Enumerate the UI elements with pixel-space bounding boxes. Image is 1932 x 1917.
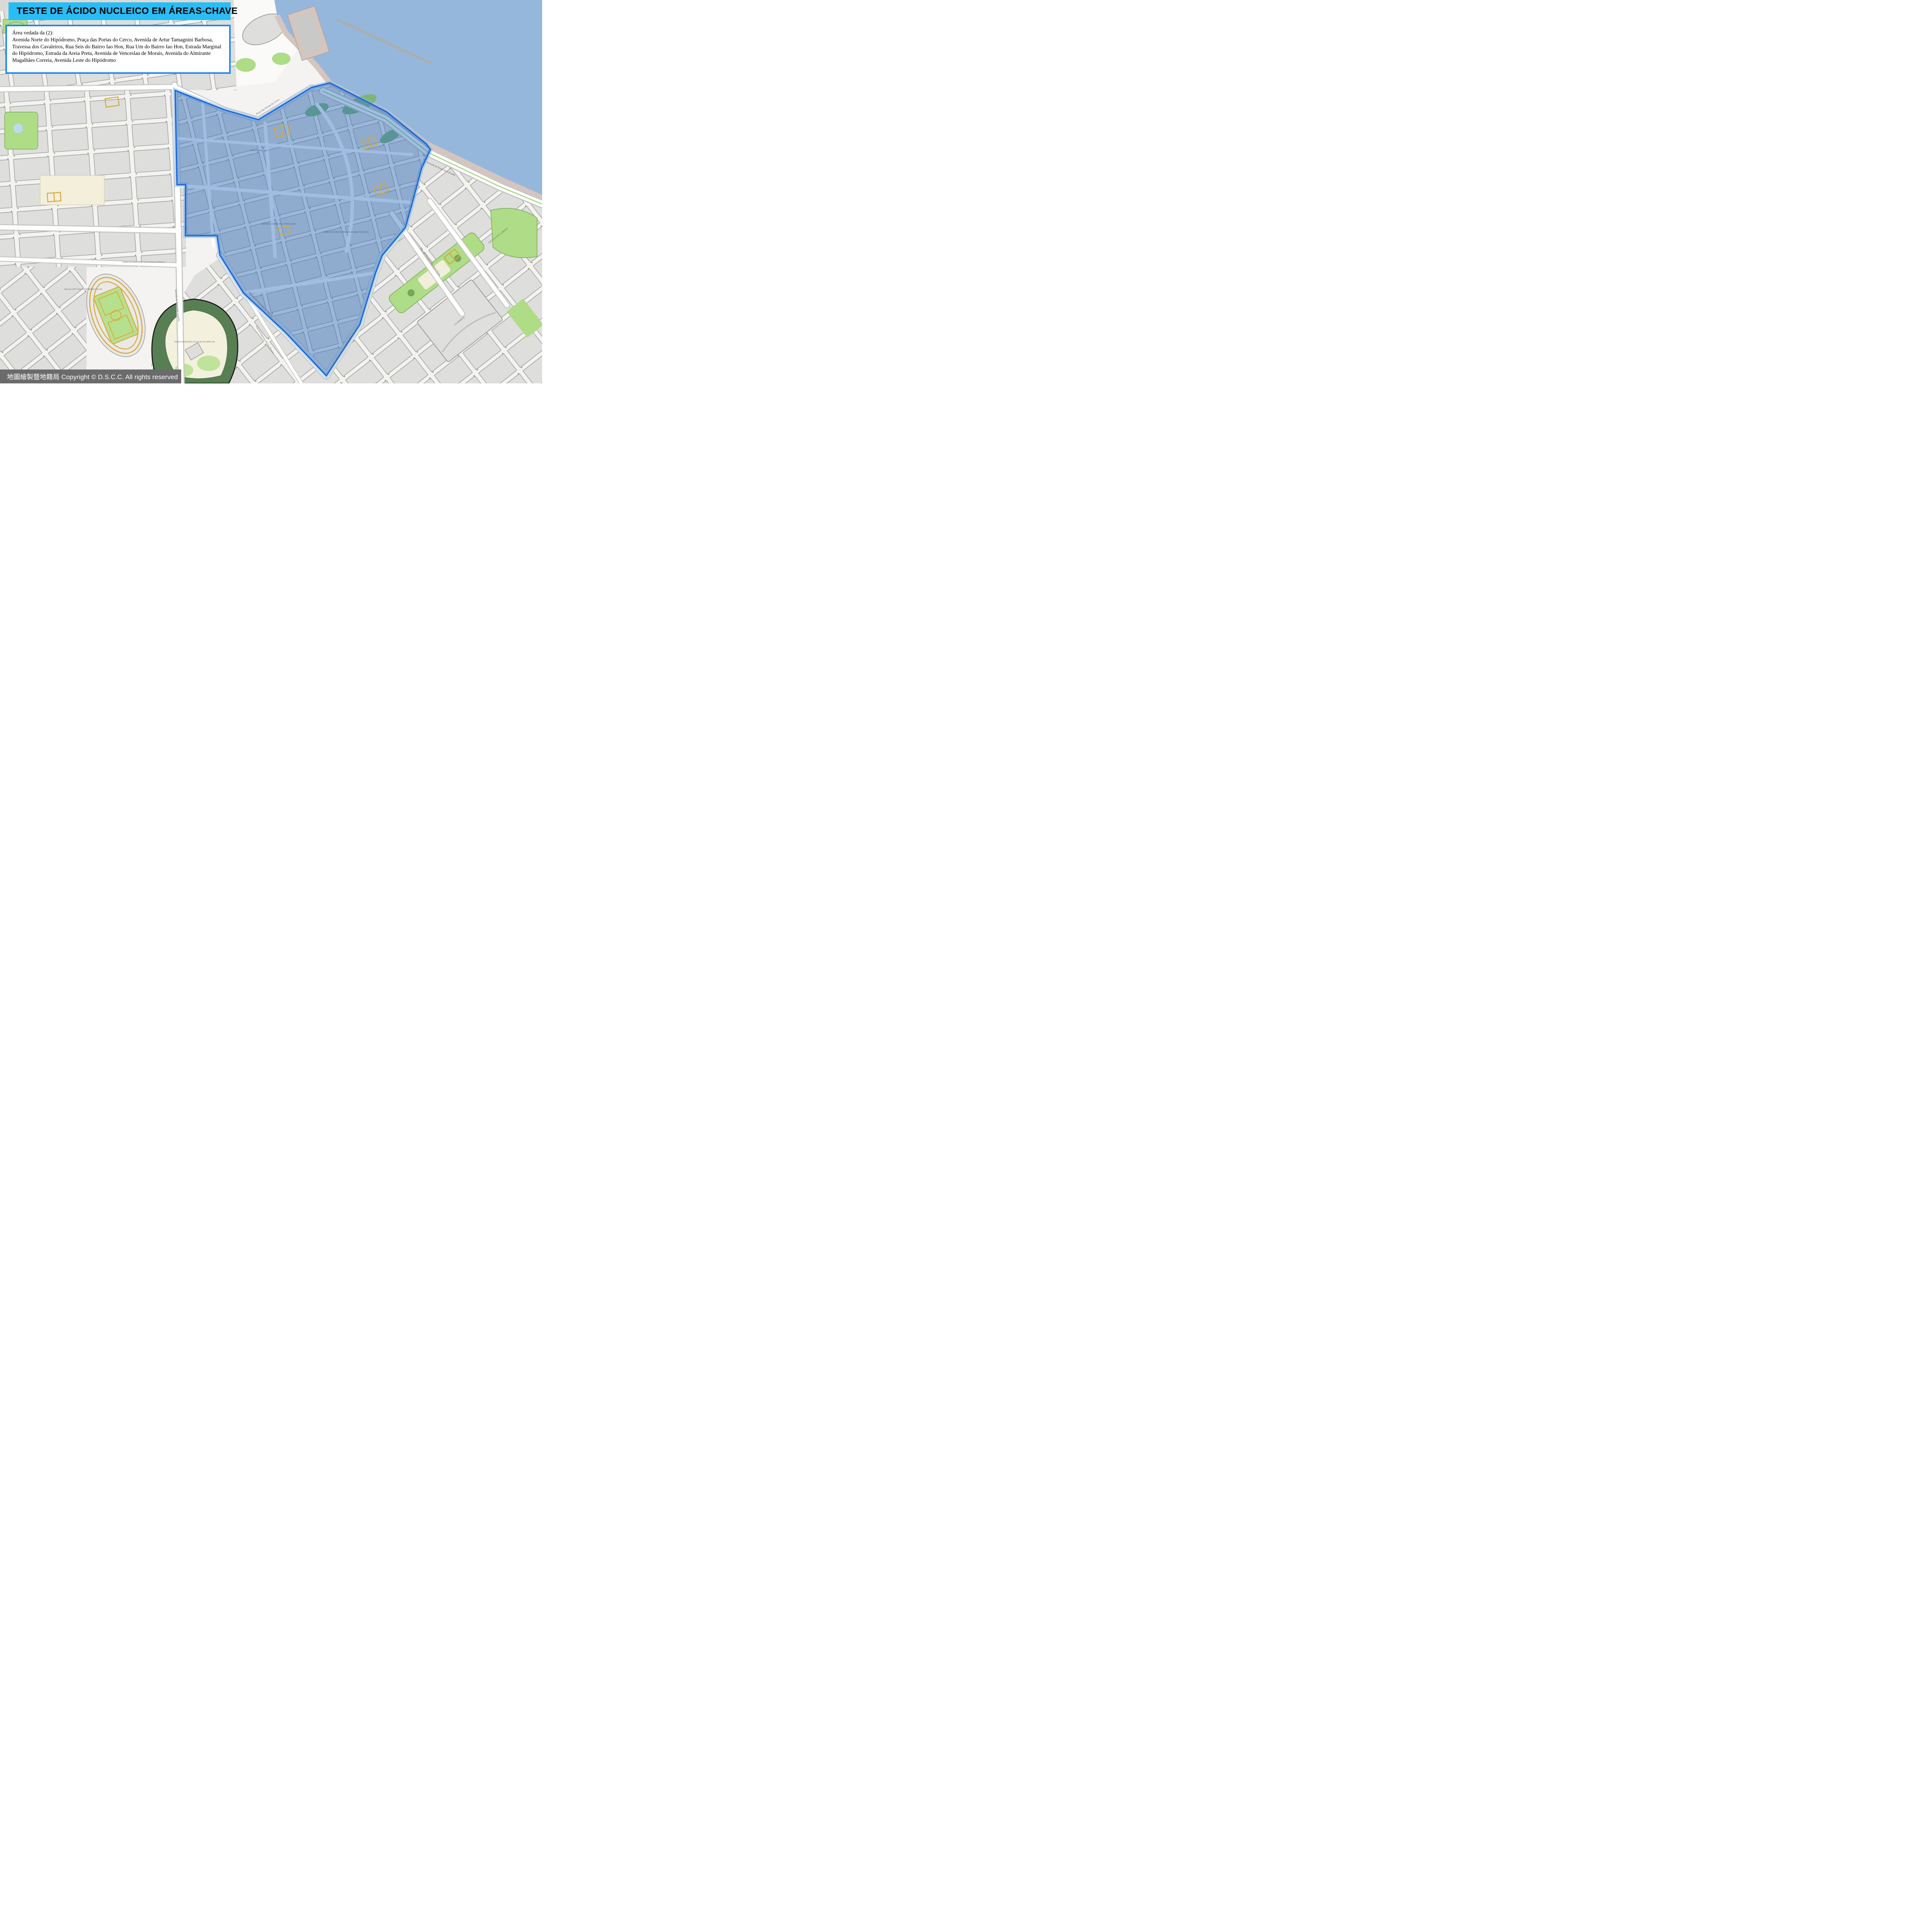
school-campus [40, 175, 104, 205]
copyright-bar: 地圖繪製暨地籍局 Copyright © D.S.C.C. All rights… [0, 369, 181, 383]
place-label-sun-star-plaza: SUN STAR PLAZA [250, 150, 268, 152]
place-label-vong-kam: CENTRO COMERCIAL VONG KAM [261, 223, 295, 225]
restricted-area-info-box: Área vedada da (2): Avenida Norte do Hip… [5, 25, 231, 74]
title-banner: TESTE DE ÁCIDO NUCLEICO EM ÁREAS-CHAVE [9, 2, 231, 20]
title-banner-text: TESTE DE ÁCIDO NUCLEICO EM ÁREAS-CHAVE [17, 6, 238, 17]
notice-map-page: Praça das Portas do Cerco Avenida da Pon… [0, 0, 542, 383]
info-box-heading: Área vedada da (2): [12, 29, 224, 36]
copyright-text: 地圖繪製暨地籍局 Copyright © D.S.C.C. All rights… [7, 371, 178, 381]
place-label-mercado-iao-hon: MERCADO MUNICIPAL DO BAIRRO IAO HON [324, 231, 369, 233]
info-box-street-list: Avenida Norte do Hipódromo, Praça das Po… [12, 36, 224, 63]
place-label-mong-ha: PARQUE MUNICIPAL DA COLINA DE MONG HÁ [175, 341, 215, 343]
